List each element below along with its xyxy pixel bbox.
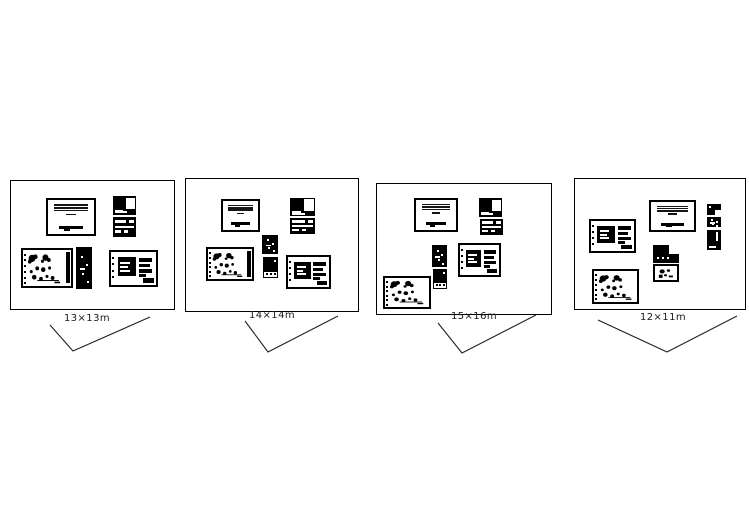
layout-option-frame-3 — [376, 183, 552, 315]
note-blob — [484, 265, 490, 267]
detail-block — [294, 262, 310, 279]
framed-blobs-graphic — [657, 267, 676, 279]
size-label-3: 15×16m — [451, 312, 497, 322]
edge-dot — [289, 279, 291, 281]
cover-title-nub — [64, 229, 70, 231]
white-stripe — [115, 220, 127, 223]
plan-blobs — [388, 279, 427, 305]
title-block — [143, 278, 155, 283]
plan-sheet-thumbnail — [592, 269, 639, 304]
plan-blobs-graphic — [388, 279, 427, 305]
cover-title-nub — [235, 225, 240, 227]
detail-block — [466, 250, 482, 267]
plan-sheet-thumbnail — [206, 247, 254, 281]
dark-sheet-thumbnail — [480, 219, 503, 235]
white-notch — [715, 210, 721, 215]
white-speck — [662, 257, 664, 259]
detail-block — [597, 226, 614, 243]
white-stripe — [491, 230, 495, 232]
white-stripe — [482, 226, 501, 228]
dark-sheet-thumbnail — [707, 217, 721, 227]
white-speck — [81, 256, 83, 258]
note-blob — [618, 237, 631, 241]
plan-blobs-graphic — [26, 252, 63, 284]
white-dash — [297, 270, 304, 272]
cover-text-line — [668, 213, 677, 215]
plan-blobs-graphic — [211, 251, 245, 278]
white-speck — [268, 247, 270, 249]
white-speck — [82, 273, 84, 275]
white-speck — [441, 254, 443, 256]
black-dot — [274, 273, 276, 275]
white-speck — [87, 281, 89, 283]
cover-text-line — [228, 205, 253, 207]
edge-dot — [112, 257, 114, 259]
cover-text-line — [422, 204, 451, 206]
edge-dot — [592, 231, 594, 233]
dark-sheet-thumbnail — [113, 217, 136, 237]
edge-dot — [112, 276, 114, 278]
dark-sheet-thumbnail — [707, 230, 721, 250]
plan-blobs-graphic — [597, 273, 635, 301]
right-strip — [247, 251, 251, 277]
cover-text-line — [66, 214, 75, 216]
black-dot — [443, 284, 445, 286]
white-stripe — [124, 230, 128, 233]
white-speck — [711, 219, 713, 221]
cad-drawing-canvas: 13×13m 14×14m 15×16m 12×11m — [0, 0, 749, 530]
cover-text-line — [422, 209, 451, 211]
detail-block — [118, 257, 136, 276]
framed-blobs — [657, 267, 676, 279]
dark-sheet-thumbnail — [113, 196, 136, 215]
white-dash — [435, 256, 440, 258]
note-blob — [618, 226, 631, 230]
white-dash — [115, 211, 127, 213]
edge-dot — [461, 249, 463, 251]
white-speck — [86, 264, 88, 266]
black-dot — [266, 273, 268, 275]
cover-text-line — [422, 206, 451, 208]
cover-sheet-thumbnail — [649, 200, 696, 232]
detail-sheet-thumbnail — [458, 243, 501, 277]
white-stripe — [482, 221, 494, 224]
dark-sheet-thumbnail — [263, 257, 278, 278]
size-label-4: 12×11m — [640, 313, 686, 323]
edge-dot — [289, 261, 291, 263]
white-area — [304, 199, 314, 210]
dark-sheet-thumbnail — [290, 198, 315, 216]
layout-option-frame-4 — [574, 178, 746, 310]
edge-dot — [461, 255, 463, 257]
cover-title-nub — [430, 225, 436, 227]
white-area — [126, 198, 135, 210]
edge-dot — [461, 261, 463, 263]
white-speck — [267, 239, 269, 241]
dark-sheet-thumbnail — [653, 245, 679, 263]
cover-title-nub — [666, 225, 672, 227]
white-dash — [710, 222, 715, 224]
white-dash — [120, 270, 130, 272]
cover-text-line — [657, 210, 688, 212]
note-blob — [313, 277, 320, 279]
dark-sheet-thumbnail — [432, 245, 447, 267]
edge-dot — [461, 267, 463, 269]
edge-dot — [112, 263, 114, 265]
edge-dot — [112, 270, 114, 272]
note-blob — [618, 232, 628, 235]
note-blob — [313, 273, 325, 277]
note-blob — [139, 274, 146, 277]
white-strip — [264, 272, 277, 277]
white-stripe — [115, 230, 121, 233]
white-dash — [297, 273, 306, 275]
plan-blobs — [211, 251, 245, 278]
note-blob — [139, 269, 153, 273]
check-mark-line — [245, 316, 338, 352]
detail-sheet-thumbnail — [286, 255, 331, 289]
plan-sheet-thumbnail — [383, 276, 431, 309]
black-dot — [439, 284, 441, 286]
dark-sheet-thumbnail — [433, 269, 447, 289]
white-dash — [600, 234, 607, 236]
white-dash — [80, 268, 85, 270]
white-speck — [716, 225, 718, 227]
plan-sheet-thumbnail — [21, 248, 73, 288]
white-speck — [657, 257, 659, 259]
dark-sheet-thumbnail — [290, 218, 315, 234]
white-stripe — [292, 220, 305, 223]
cover-text-line — [54, 204, 87, 206]
cover-sheet-thumbnail — [46, 198, 96, 236]
cover-text-line — [228, 207, 253, 209]
white-area — [669, 245, 679, 254]
size-label-2: 14×14m — [249, 311, 295, 321]
note-blob — [313, 268, 323, 271]
white-stripe — [115, 226, 134, 228]
white-dash — [468, 261, 477, 263]
white-dash — [120, 262, 130, 264]
layout-option-frame-1 — [10, 180, 175, 310]
white-speck — [709, 206, 711, 208]
white-dash — [266, 245, 271, 247]
white-speck — [273, 250, 275, 252]
note-blob — [484, 256, 493, 259]
white-dash — [292, 213, 305, 215]
cover-text-line — [228, 209, 253, 211]
edge-dot — [289, 273, 291, 275]
cover-sheet-thumbnail — [414, 198, 458, 232]
layout-option-frame-2 — [185, 178, 359, 312]
framed-sheet-thumbnail — [653, 264, 679, 282]
cover-text-line — [54, 207, 87, 209]
white-speck — [272, 243, 274, 245]
black-dot — [436, 284, 438, 286]
white-stripe — [482, 230, 488, 232]
dark-sheet-thumbnail — [76, 247, 92, 289]
dark-sheet-thumbnail — [707, 204, 721, 215]
note-blob — [618, 241, 625, 243]
plan-blobs — [26, 252, 63, 284]
plan-blobs — [597, 273, 635, 301]
white-speck — [716, 221, 718, 223]
note-blob — [139, 264, 150, 267]
cover-text-line — [237, 213, 244, 215]
white-dash — [468, 258, 474, 260]
white-dash — [481, 213, 493, 215]
white-stripe — [308, 220, 314, 223]
white-stripe — [292, 225, 313, 227]
detail-sheet-thumbnail — [589, 219, 636, 253]
white-speck — [438, 259, 440, 261]
white-speck — [442, 263, 444, 265]
note-blob — [484, 250, 496, 254]
title-block — [487, 269, 497, 273]
black-dot — [270, 273, 272, 275]
white-speck — [274, 260, 276, 262]
note-blob — [313, 262, 325, 266]
white-stripe — [129, 220, 134, 223]
dark-sheet-thumbnail — [262, 235, 278, 254]
white-dash — [468, 254, 477, 256]
cover-text-line — [54, 210, 87, 212]
white-strip — [434, 283, 446, 288]
note-blob — [484, 261, 496, 265]
edge-dot — [592, 243, 594, 245]
right-strip — [66, 252, 70, 284]
white-speck — [443, 272, 445, 274]
white-dash — [709, 246, 716, 248]
white-dash — [297, 266, 306, 268]
size-label-1: 13×13m — [64, 314, 110, 324]
cover-title-bar — [59, 226, 83, 229]
edge-dot — [592, 237, 594, 239]
edge-dot — [592, 225, 594, 227]
white-stripe — [302, 229, 307, 231]
white-speck — [437, 250, 439, 252]
cover-text-line — [432, 212, 440, 214]
white-dash — [600, 237, 609, 239]
white-dash — [600, 230, 609, 232]
white-slit — [716, 232, 718, 242]
title-block — [621, 245, 632, 249]
cover-sheet-thumbnail — [221, 199, 260, 232]
white-speck — [667, 257, 669, 259]
white-stripe — [292, 229, 299, 231]
white-stripe — [496, 221, 501, 224]
note-blob — [139, 258, 153, 262]
detail-sheet-thumbnail — [109, 250, 158, 287]
edge-dot — [289, 267, 291, 269]
white-dash — [120, 266, 127, 268]
white-area — [492, 200, 501, 212]
title-block — [317, 281, 328, 285]
dark-sheet-thumbnail — [479, 198, 502, 217]
